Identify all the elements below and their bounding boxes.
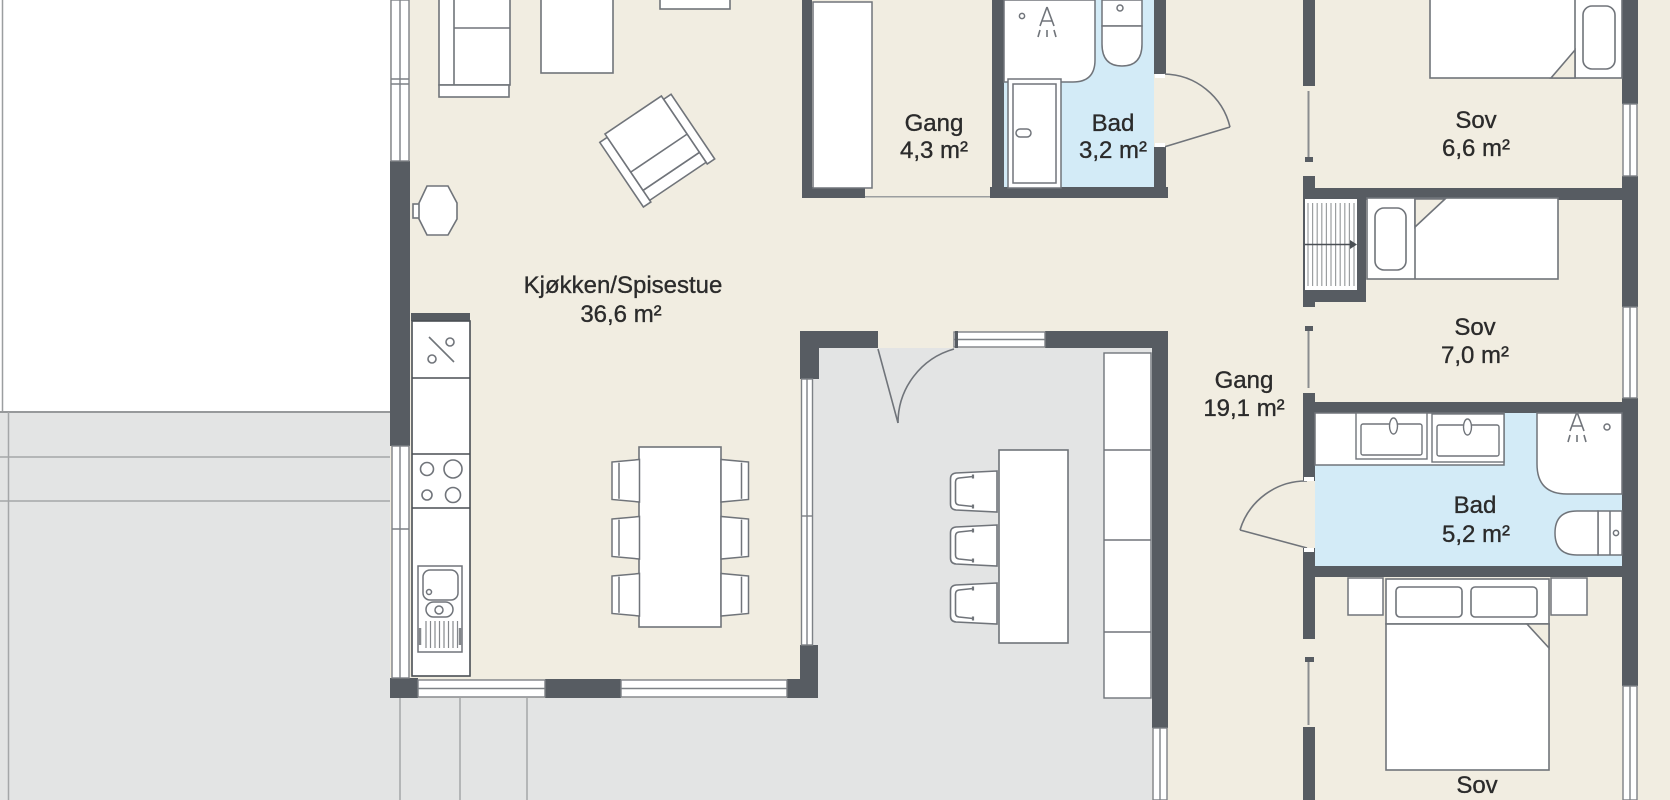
svg-text:Gang: Gang: [1215, 367, 1274, 394]
svg-text:3,2 m²: 3,2 m²: [1079, 137, 1147, 164]
svg-text:Sov: Sov: [1454, 314, 1495, 341]
svg-text:19,1 m²: 19,1 m²: [1203, 395, 1284, 422]
svg-text:7,0 m²: 7,0 m²: [1441, 342, 1509, 369]
svg-text:Gang: Gang: [905, 110, 964, 137]
svg-text:Kjøkken/Spisestue: Kjøkken/Spisestue: [524, 272, 723, 299]
svg-text:Bad: Bad: [1092, 110, 1135, 137]
svg-text:Sov: Sov: [1455, 107, 1496, 134]
svg-text:4,3 m²: 4,3 m²: [900, 137, 968, 164]
svg-text:5,2 m²: 5,2 m²: [1442, 521, 1510, 548]
svg-text:Sov: Sov: [1456, 772, 1497, 799]
svg-text:6,6 m²: 6,6 m²: [1442, 135, 1510, 162]
svg-text:Bad: Bad: [1454, 492, 1497, 519]
svg-text:36,6 m²: 36,6 m²: [580, 301, 661, 328]
